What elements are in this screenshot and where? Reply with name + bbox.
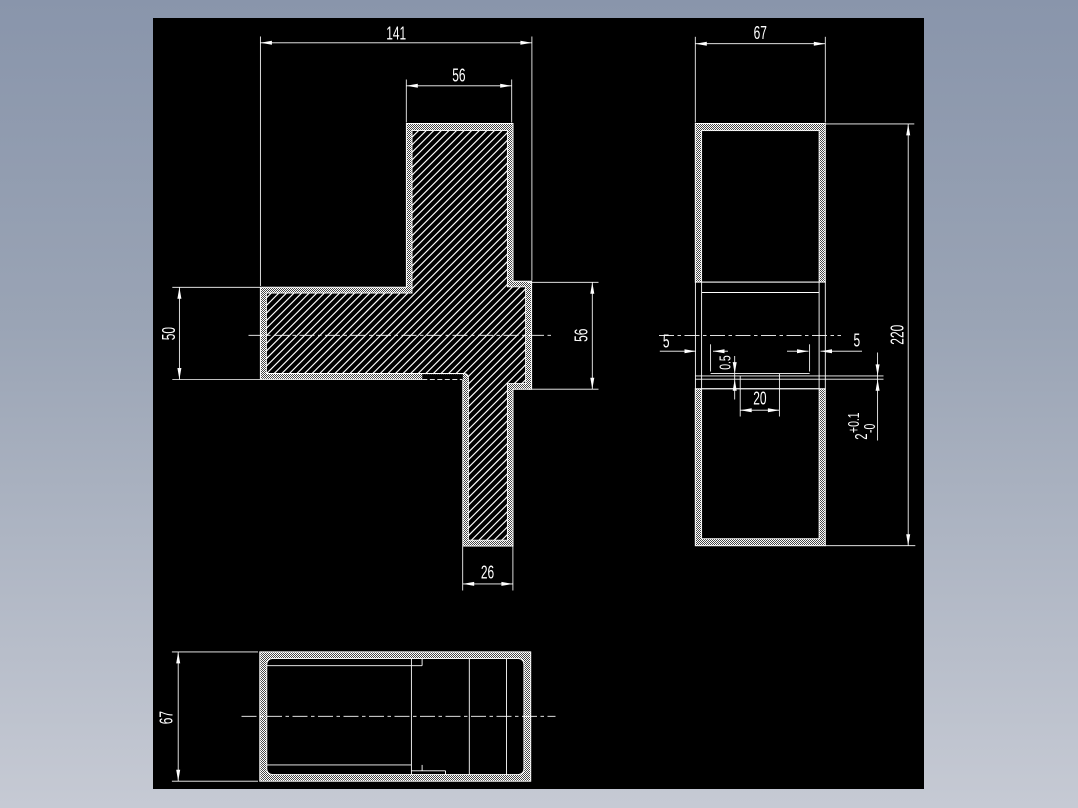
svg-text:50: 50 bbox=[159, 327, 179, 341]
svg-text:56: 56 bbox=[452, 66, 465, 86]
svg-text:2: 2 bbox=[853, 433, 872, 439]
svg-text:67: 67 bbox=[754, 24, 767, 44]
svg-text:220: 220 bbox=[888, 324, 908, 344]
svg-text:20: 20 bbox=[753, 389, 767, 409]
svg-text:0.5: 0.5 bbox=[716, 355, 734, 369]
svg-text:26: 26 bbox=[481, 563, 494, 583]
svg-text:5: 5 bbox=[853, 331, 860, 351]
svg-text:141: 141 bbox=[386, 24, 406, 44]
svg-text:5: 5 bbox=[663, 332, 670, 352]
svg-text:67: 67 bbox=[157, 711, 177, 724]
svg-text:-0: -0 bbox=[861, 424, 879, 433]
svg-text:56: 56 bbox=[572, 329, 592, 342]
